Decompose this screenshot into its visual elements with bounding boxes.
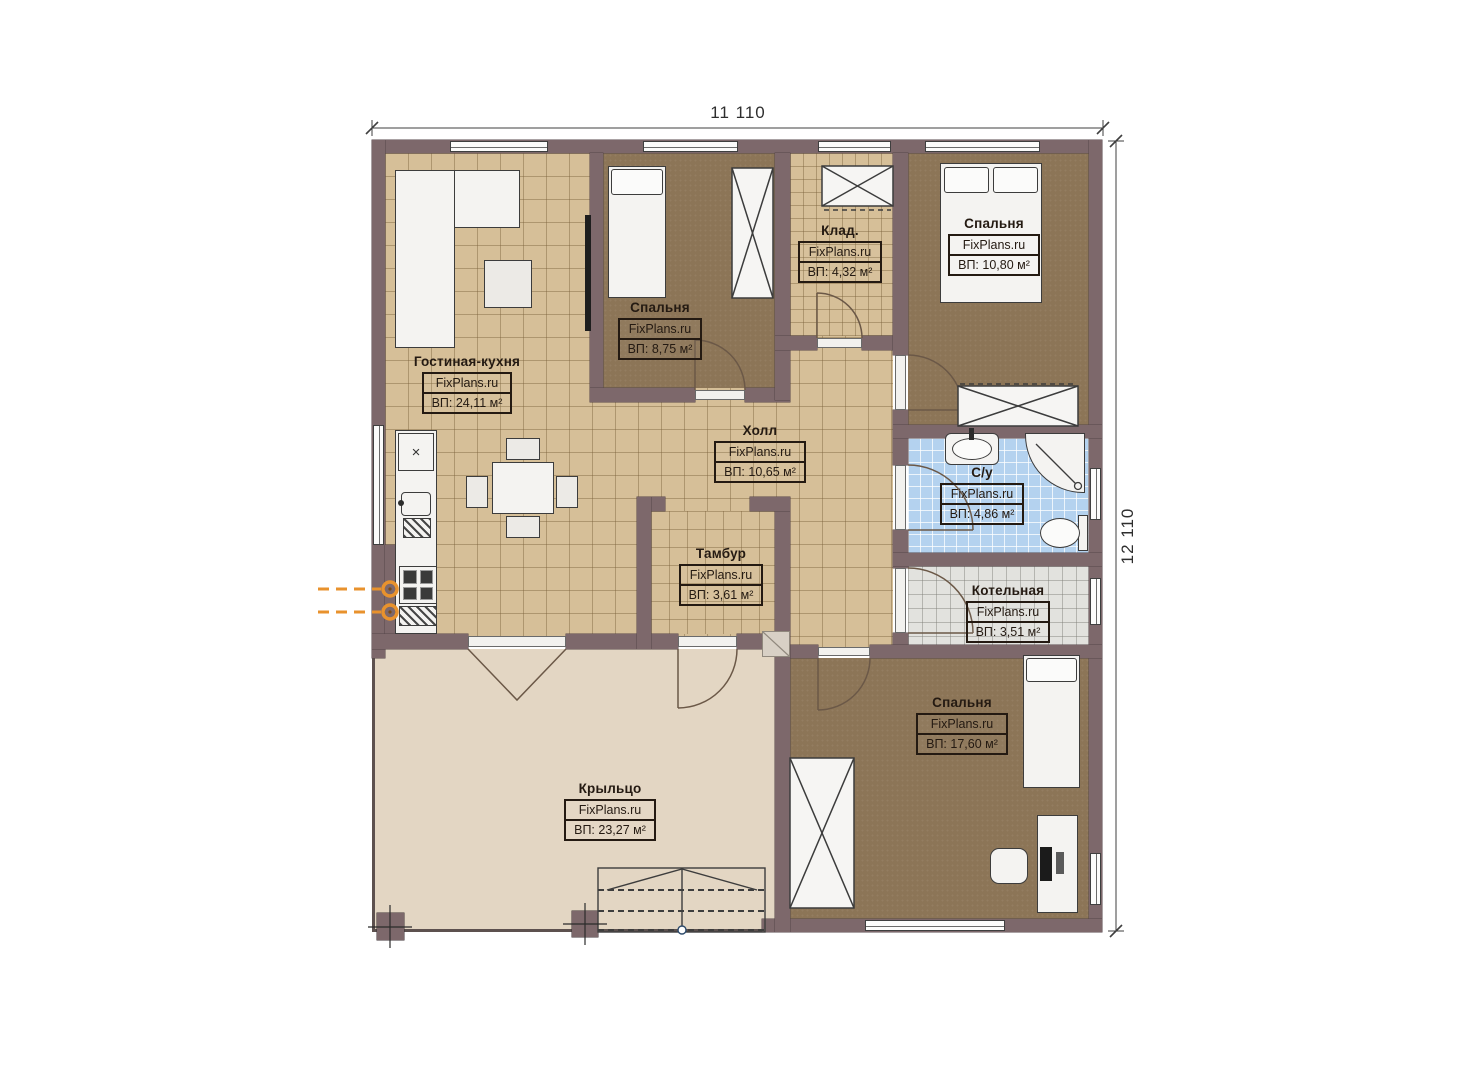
room-area: ВП: 24,11 м² bbox=[424, 394, 511, 412]
room-label-storage: Клад. FixPlans.ru ВП: 4,32 м² bbox=[775, 224, 905, 283]
window-bedroom-1 bbox=[643, 141, 738, 152]
porch-column-right bbox=[572, 911, 598, 937]
room-label-bedroom-1: Спальня FixPlans.ru ВП: 8,75 м² bbox=[595, 301, 725, 360]
room-name: Спальня bbox=[932, 696, 992, 710]
kitchen-sink bbox=[401, 492, 431, 516]
window-bedroom-3-east bbox=[1090, 853, 1101, 905]
floor-plan: × bbox=[0, 0, 1473, 1080]
room-brand: FixPlans.ru bbox=[620, 320, 701, 340]
room-name: С/у bbox=[971, 466, 993, 480]
tv-panel bbox=[585, 215, 591, 331]
room-area: ВП: 4,32 м² bbox=[800, 263, 881, 281]
room-brand: FixPlans.ru bbox=[800, 243, 881, 263]
dishwasher bbox=[403, 518, 431, 538]
office-chair bbox=[990, 848, 1028, 884]
wall-bedroom1-south-a bbox=[590, 388, 695, 402]
room-name: Гостиная-кухня bbox=[414, 355, 520, 369]
dining-chair-right bbox=[556, 476, 578, 508]
fridge: × bbox=[398, 433, 434, 471]
room-box: FixPlans.ru ВП: 10,65 м² bbox=[714, 441, 806, 483]
door-threshold-boiler bbox=[895, 568, 906, 633]
wall-bedroom3-west bbox=[775, 645, 790, 932]
monitor bbox=[1040, 847, 1052, 881]
door-threshold-storage bbox=[817, 338, 862, 348]
window-bedroom-3-south bbox=[865, 920, 1005, 931]
door-threshold-living-porch bbox=[468, 636, 566, 647]
room-name: Тамбур bbox=[696, 547, 746, 561]
room-brand: FixPlans.ru bbox=[968, 603, 1049, 623]
pc-tower bbox=[1056, 852, 1064, 874]
cabinet-cross-icon: × bbox=[412, 444, 421, 461]
room-brand: FixPlans.ru bbox=[566, 801, 654, 821]
room-brand: FixPlans.ru bbox=[942, 485, 1023, 505]
window-kitchen bbox=[373, 425, 384, 545]
dining-table bbox=[492, 462, 554, 514]
stove-burners-icon bbox=[403, 570, 433, 600]
door-threshold-bedroom-1 bbox=[695, 390, 745, 400]
wall-junction-pad bbox=[762, 631, 790, 657]
room-name: Спальня bbox=[964, 217, 1024, 231]
door-threshold-vestibule-porch bbox=[678, 636, 737, 647]
burner bbox=[403, 587, 417, 601]
room-box: FixPlans.ru ВП: 3,61 м² bbox=[679, 564, 764, 606]
room-label-boiler-room: Котельная FixPlans.ru ВП: 3,51 м² bbox=[943, 584, 1073, 643]
kitchen-faucet bbox=[398, 500, 404, 506]
wall-right bbox=[1089, 140, 1102, 932]
pillow-left-bedroom-2 bbox=[944, 167, 989, 193]
room-label-bathroom: С/у FixPlans.ru ВП: 4,86 м² bbox=[917, 466, 1047, 525]
window-boiler bbox=[1090, 578, 1101, 625]
window-bedroom-2 bbox=[925, 141, 1040, 152]
room-box: FixPlans.ru ВП: 3,51 м² bbox=[966, 601, 1051, 643]
door-threshold-bedroom-3 bbox=[818, 647, 870, 656]
pillow-bedroom-1 bbox=[611, 169, 663, 195]
room-name: Спальня bbox=[630, 301, 690, 315]
dimension-width: 11 110 bbox=[688, 103, 788, 123]
room-box: FixPlans.ru ВП: 10,80 м² bbox=[948, 234, 1040, 276]
burner bbox=[420, 587, 434, 601]
room-box: FixPlans.ru ВП: 24,11 м² bbox=[422, 372, 513, 414]
sofa-vertical bbox=[395, 170, 455, 348]
wall-left bbox=[372, 140, 385, 658]
dining-chair-bottom bbox=[506, 516, 540, 538]
room-area: ВП: 10,80 м² bbox=[950, 256, 1038, 274]
wall-living-south-b bbox=[566, 634, 678, 649]
burner bbox=[403, 570, 417, 584]
window-living bbox=[450, 141, 548, 152]
room-name: Котельная bbox=[972, 584, 1044, 598]
room-label-porch: Крыльцо FixPlans.ru ВП: 23,27 м² bbox=[545, 782, 675, 841]
room-area: ВП: 23,27 м² bbox=[566, 821, 654, 839]
window-bathroom bbox=[1090, 468, 1101, 520]
room-name: Крыльцо bbox=[579, 782, 642, 796]
room-label-vestibule: Тамбур FixPlans.ru ВП: 3,61 м² bbox=[656, 547, 786, 606]
kitchen-cabinet-hatched bbox=[399, 606, 437, 626]
dining-chair-top bbox=[506, 438, 540, 460]
room-box: FixPlans.ru ВП: 8,75 м² bbox=[618, 318, 703, 360]
room-label-bedroom-2: Спальня FixPlans.ru ВП: 10,80 м² bbox=[929, 217, 1059, 276]
room-brand: FixPlans.ru bbox=[424, 374, 511, 394]
room-box: FixPlans.ru ВП: 17,60 м² bbox=[916, 713, 1008, 755]
wall-vestibule-north-b bbox=[750, 497, 790, 511]
porch-column-left bbox=[377, 913, 404, 940]
pillow-bedroom-3 bbox=[1026, 658, 1077, 682]
room-brand: FixPlans.ru bbox=[918, 715, 1006, 735]
wall-bedroom1-west bbox=[590, 153, 603, 402]
room-area: ВП: 4,86 м² bbox=[942, 505, 1023, 523]
room-box: FixPlans.ru ВП: 4,86 м² bbox=[940, 483, 1025, 525]
room-area: ВП: 8,75 м² bbox=[620, 340, 701, 358]
room-brand: FixPlans.ru bbox=[681, 566, 762, 586]
room-name: Холл bbox=[743, 424, 778, 438]
dimension-height: 12 110 bbox=[1118, 486, 1138, 586]
room-box: FixPlans.ru ВП: 23,27 м² bbox=[564, 799, 656, 841]
pillow-right-bedroom-2 bbox=[993, 167, 1038, 193]
coffee-table bbox=[484, 260, 532, 308]
bathroom-sink-bowl bbox=[952, 438, 992, 460]
room-label-bedroom-3: Спальня FixPlans.ru ВП: 17,60 м² bbox=[897, 696, 1027, 755]
window-storage bbox=[818, 141, 891, 152]
door-threshold-bedroom-2 bbox=[895, 355, 906, 410]
room-label-hall: Холл FixPlans.ru ВП: 10,65 м² bbox=[695, 424, 825, 483]
room-label-living-kitchen: Гостиная-кухня FixPlans.ru ВП: 24,11 м² bbox=[402, 355, 532, 414]
wall-living-south-a bbox=[372, 634, 468, 649]
room-brand: FixPlans.ru bbox=[950, 236, 1038, 256]
room-area: ВП: 17,60 м² bbox=[918, 735, 1006, 753]
room-brand: FixPlans.ru bbox=[716, 443, 804, 463]
room-area: ВП: 3,61 м² bbox=[681, 586, 762, 604]
wall-vestibule-west bbox=[637, 497, 651, 649]
dining-chair-left bbox=[466, 476, 488, 508]
wall-storage-south-a bbox=[775, 336, 817, 350]
wall-bathroom-south bbox=[893, 553, 1102, 566]
room-area: ВП: 10,65 м² bbox=[716, 463, 804, 481]
bathroom-sink-tap bbox=[969, 428, 974, 440]
burner bbox=[420, 570, 434, 584]
porch-edge-left bbox=[372, 658, 375, 932]
door-threshold-bathroom bbox=[895, 465, 906, 530]
room-area: ВП: 3,51 м² bbox=[968, 623, 1049, 641]
room-name: Клад. bbox=[821, 224, 859, 238]
room-box: FixPlans.ru ВП: 4,32 м² bbox=[798, 241, 883, 283]
